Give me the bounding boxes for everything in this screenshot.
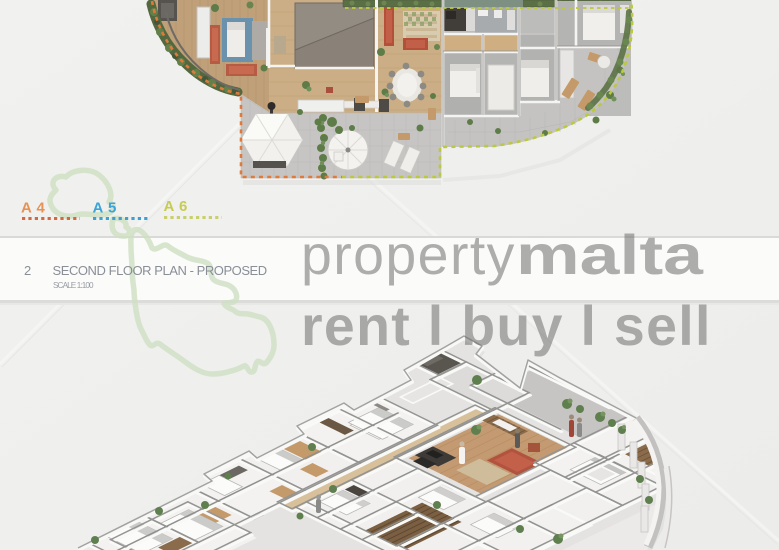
svg-text:malta: malta [516,224,704,286]
svg-text:A 4: A 4 [21,200,45,217]
svg-text:A 5: A 5 [93,200,117,217]
svg-text:rent l buy l sell: rent l buy l sell [301,295,712,357]
svg-text:property: property [301,224,516,286]
svg-text:A 6: A 6 [164,198,188,215]
svg-text:SCALE 1:100: SCALE 1:100 [53,281,94,290]
svg-text:2: 2 [24,263,31,278]
svg-text:SECOND FLOOR PLAN - PROPOSED: SECOND FLOOR PLAN - PROPOSED [53,263,267,278]
